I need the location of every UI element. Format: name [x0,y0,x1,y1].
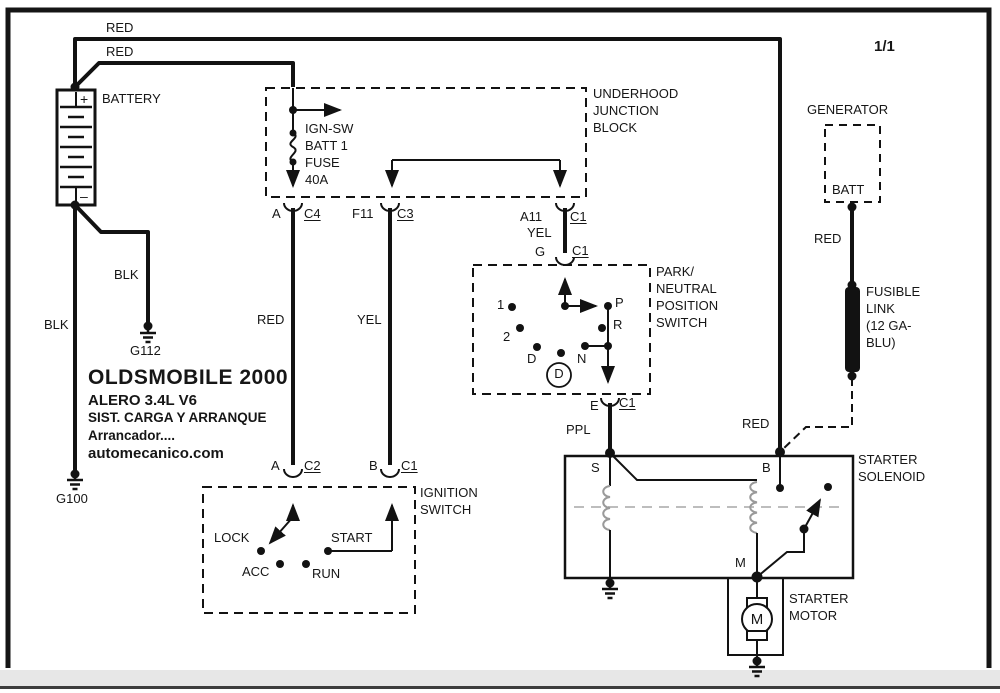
battery-minus-sign: – [80,188,88,204]
connector-g-c1: C1 [572,244,589,259]
connector-pin-a11: A11 [520,210,542,225]
ignition-pos-run: RUN [312,567,340,582]
pnp-pos-2: 2 [503,330,510,345]
wire-label-yel-pnp: YEL [527,226,552,241]
ignition-pin-a: A [271,459,280,474]
starter-motor-m-symbol: M [751,611,764,628]
junction-block-title: UNDERHOOD JUNCTION BLOCK [593,86,678,137]
connector-pin-g: G [535,245,545,260]
ignition-c2: C2 [304,459,321,474]
battery-label: BATTERY [102,92,161,107]
fuse-label: IGN-SW BATT 1 FUSE 40A [305,121,353,189]
ignition-switch-title: IGNITION SWITCH [420,485,478,519]
pnp-pos-n: N [577,352,586,367]
wire-label-blk-right: BLK [114,268,139,283]
title-line-5: automecanico.com [88,445,224,462]
connector-pin-e: E [590,399,599,414]
starter-solenoid-symbol [565,447,853,583]
connector-pin-f11: F11 [352,207,373,222]
wire-label-red-ignition: RED [257,313,284,328]
title-line-2: ALERO 3.4L V6 [88,392,197,409]
connector-a11-c1: C1 [570,210,587,225]
connector-c3: C3 [397,207,414,222]
wire-label-red-mid: RED [106,45,133,60]
ignition-pin-b: B [369,459,378,474]
solenoid-terminal-s: S [591,461,600,476]
connector-c4: C4 [304,207,321,222]
title-line-4: Arrancador.... [88,428,175,444]
wire-label-blk-left: BLK [44,318,69,333]
ignition-c1: C1 [401,459,418,474]
generator-symbol [825,125,880,212]
fusible-link-label: FUSIBLE LINK (12 GA- BLU) [866,284,920,352]
battery-symbol [57,83,95,210]
pnp-indicator-d: D [554,367,563,382]
ground-label-g100: G100 [56,492,88,507]
generator-batt-terminal: BATT [832,183,864,198]
pnp-pos-d: D [527,352,536,367]
wire-label-ppl: PPL [566,423,591,438]
title-line-3: SIST. CARGA Y ARRANQUE [88,410,267,426]
ignition-pos-acc: ACC [242,565,269,580]
solenoid-terminal-b: B [762,461,771,476]
starter-solenoid-title: STARTER SOLENOID [858,452,925,486]
wiring-diagram-page: RED RED 1/1 BATTERY + – BLK BLK G112 G10… [0,0,1000,693]
wire-label-red-solenoid: RED [742,417,769,432]
ignition-switch-symbol [203,487,415,613]
title-line-1: OLDSMOBILE 2000 [88,366,288,390]
pnp-pos-r: R [613,318,622,333]
pnp-switch-title: PARK/ NEUTRAL POSITION SWITCH [656,264,718,332]
pnp-pos-1: 1 [497,298,504,313]
wire-label-yel-ignition: YEL [357,313,382,328]
ignition-pos-lock: LOCK [214,531,249,546]
generator-title: GENERATOR [807,103,888,118]
ground-label-g112: G112 [130,344,161,359]
wire-label-red-top: RED [106,21,133,36]
fusible-link-symbol [782,281,860,451]
ignition-pos-start: START [331,531,372,546]
solenoid-terminal-m: M [735,556,746,571]
battery-plus-sign: + [80,91,88,107]
wire-label-red-generator: RED [814,232,841,247]
connector-pin-a: A [272,207,281,222]
pnp-pos-p: P [615,296,624,311]
connector-e-c1: C1 [619,396,636,411]
starter-motor-title: STARTER MOTOR [789,591,848,625]
page-number: 1/1 [874,38,895,55]
